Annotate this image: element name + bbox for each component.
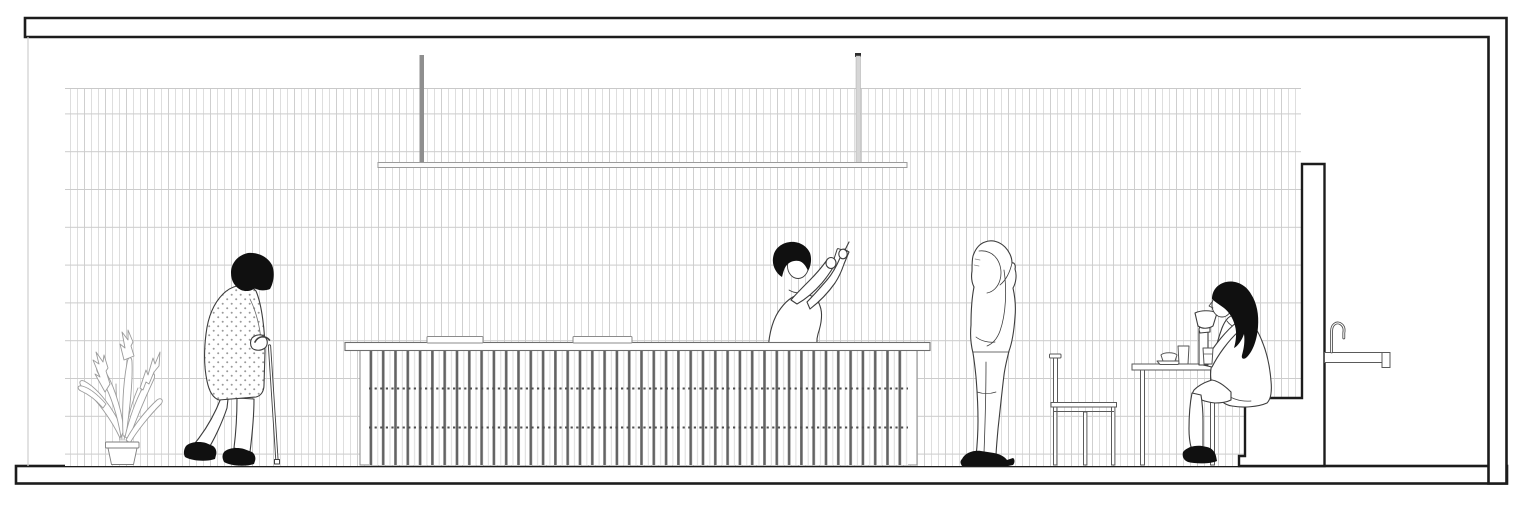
counter-tray <box>427 337 483 344</box>
pendant-rod-right <box>856 56 861 164</box>
saucer <box>1157 361 1181 365</box>
counter-tray <box>573 337 632 344</box>
chair-leg <box>1112 407 1115 465</box>
counter-slab <box>345 343 930 351</box>
sink-counter-end-cap <box>1382 353 1390 368</box>
chair-back-cap <box>1050 354 1062 358</box>
barista-hand <box>839 249 847 259</box>
pendant-rod-left <box>420 55 425 164</box>
sink-counter <box>1325 353 1391 368</box>
chair-back-post <box>1054 358 1058 403</box>
barista-hand <box>826 258 836 269</box>
pot-rim <box>106 442 140 448</box>
floor-slab <box>16 466 1507 484</box>
faucet-gooseneck <box>1332 323 1344 352</box>
service-counter <box>345 337 930 466</box>
small-cup <box>1161 353 1177 361</box>
tumbler-glass <box>1178 346 1189 364</box>
chair-leg <box>1084 412 1087 465</box>
section-drawing <box>0 0 1536 507</box>
table-leg-left <box>1141 370 1145 465</box>
elderly-back-leg <box>234 398 254 452</box>
woman-lower-leg <box>1189 393 1203 447</box>
counter-slat-cladding <box>369 350 908 465</box>
small-glass <box>1203 348 1213 364</box>
chair-seat <box>1051 403 1117 408</box>
sink-counter-slab <box>1325 353 1384 363</box>
cane-tip <box>275 460 280 465</box>
pot-body <box>108 448 137 465</box>
pendant-bar <box>378 163 907 168</box>
faucet <box>1332 323 1344 352</box>
architectural-section-canvas <box>0 0 1536 507</box>
chair-leg <box>1054 407 1057 465</box>
